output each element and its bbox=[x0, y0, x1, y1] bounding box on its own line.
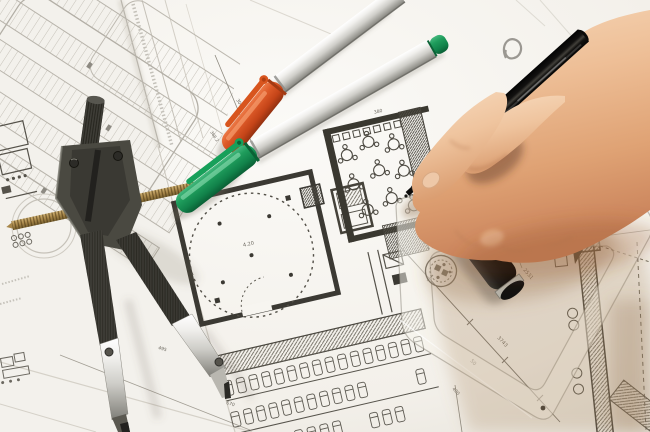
ink-mark bbox=[404, 194, 407, 197]
plan-dark-square bbox=[300, 184, 324, 208]
compass-screw bbox=[70, 159, 79, 168]
compass-screw bbox=[114, 152, 123, 161]
photo-architect-workspace: Architect's hand drawing on floor plans bbox=[0, 0, 650, 432]
